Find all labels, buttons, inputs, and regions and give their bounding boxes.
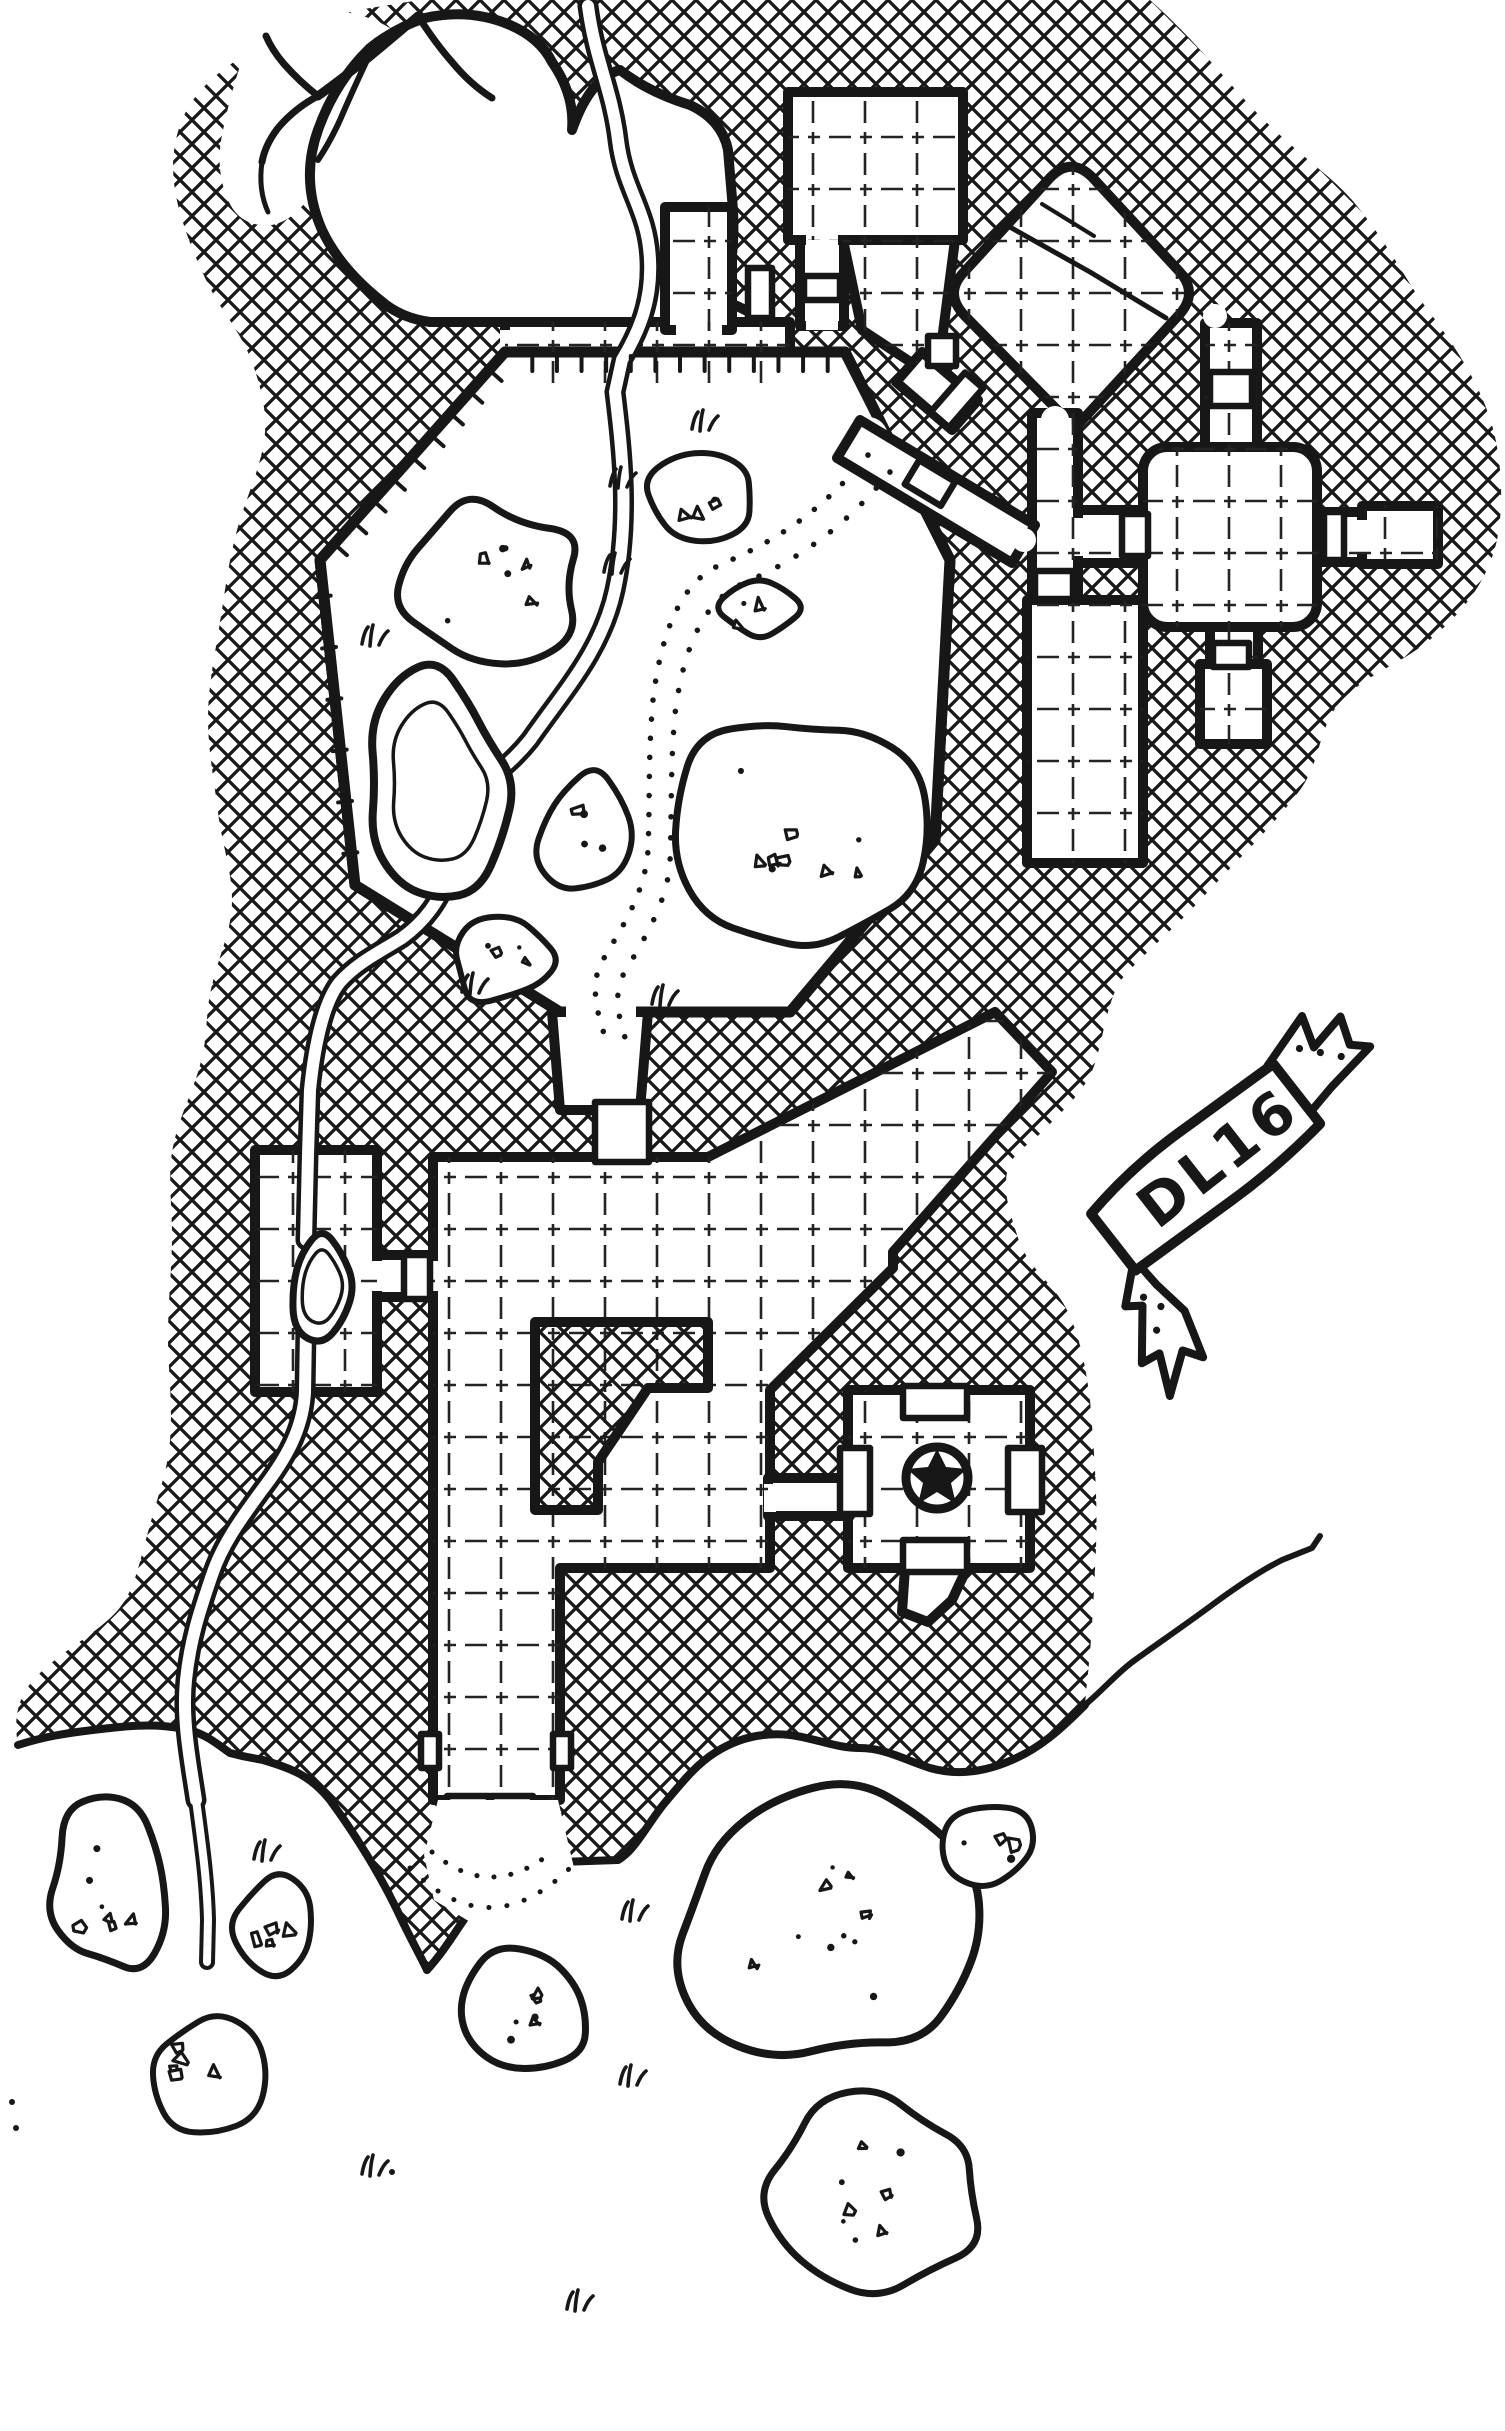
pebble-icon	[741, 601, 746, 606]
pebble-icon	[841, 1933, 846, 1938]
door-star-room-north	[903, 1386, 967, 1418]
wall-tick	[338, 801, 352, 802]
pebble-icon	[479, 553, 489, 564]
door-star-room-south	[903, 1540, 967, 1572]
pebble-icon	[580, 810, 588, 818]
ink-dot	[13, 2125, 19, 2131]
pebble-icon	[109, 1922, 117, 1931]
pebble-icon	[265, 1923, 279, 1935]
pebble-icon	[853, 2237, 859, 2243]
pebble-icon	[445, 618, 451, 624]
pebble-icon	[841, 2219, 846, 2224]
pebble-icon	[581, 841, 588, 848]
pebble-icon	[839, 2179, 845, 2185]
pebble-icon	[961, 1840, 966, 1845]
cavern-south-funnel	[552, 1012, 648, 1110]
door-cross-north	[1210, 372, 1252, 406]
door-cross-west	[1122, 514, 1148, 556]
pebble-icon	[502, 545, 508, 551]
pebble-icon	[485, 943, 491, 949]
ink-dot	[389, 2169, 395, 2175]
boulder-outline	[764, 2091, 978, 2294]
door-tall-room	[1035, 571, 1073, 599]
grass-tuft-icon	[622, 1900, 648, 1921]
door-star-room-west	[840, 1448, 870, 1514]
boulder-outline	[675, 726, 927, 946]
pebble-icon	[514, 2019, 519, 2024]
pebble-icon	[827, 1944, 834, 1951]
title-banner: DL16	[1034, 995, 1464, 1398]
pebble-icon	[738, 768, 744, 774]
dungeon-map-canvas: DL16	[0, 0, 1505, 2431]
pebble-icon	[870, 1993, 877, 2000]
door-toproom-stub	[804, 276, 840, 300]
pebble-icon	[856, 837, 861, 842]
pebble-icon	[86, 1877, 93, 1884]
door-jamb-west	[421, 1734, 439, 1768]
grass-tuft-icon	[362, 2155, 388, 2176]
door-star-room-east	[1008, 1448, 1042, 1512]
pebble-icon	[507, 2036, 515, 2044]
wall-tick	[322, 647, 336, 648]
pebble-icon	[881, 2189, 892, 2199]
pebble-icon	[517, 945, 521, 949]
pebble-icon	[599, 844, 607, 852]
grass-tuft-icon	[567, 2290, 593, 2311]
door-cross-south	[1213, 643, 1249, 667]
pebble-icon	[796, 1934, 801, 1939]
door-bridge-room	[404, 1255, 430, 1299]
east-cliff-contour	[1085, 1536, 1320, 1705]
pebble-icon	[1008, 1838, 1020, 1852]
door-passage-toproom	[748, 268, 772, 318]
pebble-icon	[169, 2069, 182, 2080]
door-cross-east	[1324, 512, 1344, 560]
pebble-icon	[861, 1911, 872, 1919]
door-cavern-hall	[595, 1102, 649, 1162]
dungeon-map: DL16	[0, 0, 1505, 2431]
pebble-icon	[266, 1939, 274, 1946]
wall-tick	[327, 698, 341, 699]
pebble-icon	[100, 1904, 105, 1909]
pebble-icon	[504, 570, 511, 577]
boulder-outline	[461, 1948, 585, 2068]
ink-dot	[9, 2099, 15, 2105]
boulder-outline	[50, 1797, 166, 1969]
door-jamb-east	[553, 1734, 571, 1768]
grass-tuft-icon	[620, 2065, 646, 2086]
boulder-outline	[677, 1784, 979, 2055]
pebble-icon	[531, 2013, 538, 2020]
pebble-icon	[896, 2148, 904, 2156]
pebble-icon	[93, 1845, 100, 1852]
wall-tick	[333, 750, 347, 751]
banner-tail-left	[1088, 1254, 1220, 1397]
pebble-icon	[1007, 1855, 1015, 1863]
grass-tuft-icon	[254, 1840, 280, 1861]
door-funnel	[928, 336, 956, 366]
pebble-icon	[785, 830, 797, 840]
pebble-icon	[830, 1865, 834, 1869]
star-marker	[906, 1447, 968, 1509]
wall-tick	[317, 596, 331, 597]
pebble-icon	[852, 1939, 857, 1944]
wall-tick	[343, 852, 357, 853]
